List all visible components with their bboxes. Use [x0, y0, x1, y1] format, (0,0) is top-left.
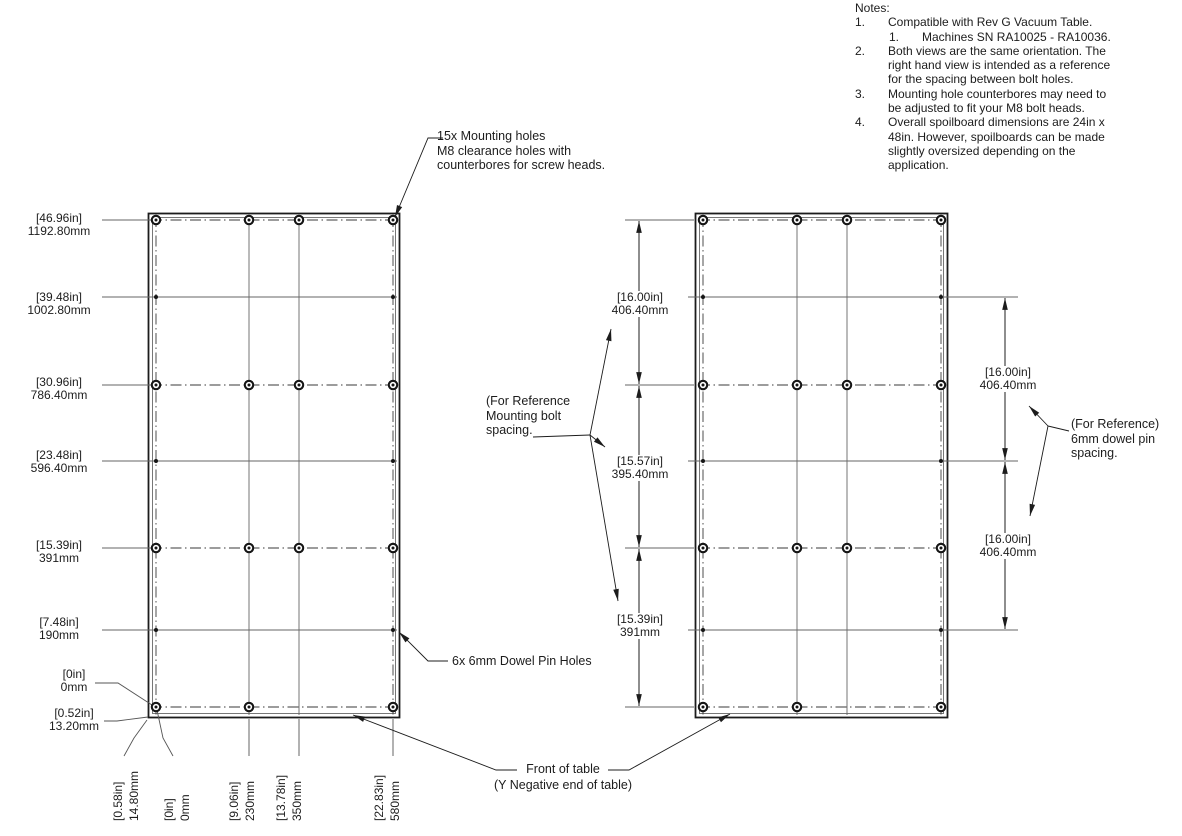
note-line: be adjusted to fit your M8 bolt heads. — [888, 101, 1106, 115]
note-text: Overall spoilboard dimensions are 24in x… — [888, 115, 1105, 172]
dim-mm: 190mm — [12, 629, 106, 642]
callout-line: Front of table — [467, 762, 659, 778]
callout-line: (Y Negative end of table) — [467, 778, 659, 794]
note-line: slightly oversized depending on the — [888, 144, 1105, 158]
dim-label-bottom-2: [9.06in] 230mm — [226, 757, 260, 821]
dim-inches: [0in] — [161, 757, 177, 821]
dim-mm: 1002.80mm — [12, 304, 106, 317]
note-text: Machines SN RA10025 - RA10036. — [922, 30, 1111, 44]
dim-label-left-1: [39.48in] 1002.80mm — [12, 291, 106, 317]
note-text: Compatible with Rev G Vacuum Table. — [888, 15, 1092, 29]
note-item-1-sub: 1. Machines SN RA10025 - RA10036. — [889, 30, 1182, 44]
dim-label-bottom-4: [22.83in] 580mm — [371, 757, 405, 821]
dim-label-dowel-1: [16.00in] 406.40mm — [968, 533, 1048, 559]
note-line: Mounting hole counterbores may need to — [888, 87, 1106, 101]
dim-mm: 13.20mm — [35, 720, 113, 733]
note-number: 2. — [855, 44, 888, 87]
note-text: Mounting hole counterbores may need to b… — [888, 87, 1106, 116]
dim-mm: 406.40mm — [969, 379, 1047, 392]
dim-mm: 14.80mm — [126, 757, 142, 821]
callout-mounting-holes: 15x Mounting holes M8 clearance holes wi… — [437, 129, 605, 173]
dim-mm: 596.40mm — [12, 462, 106, 475]
dim-mm: 391mm — [602, 626, 678, 639]
dim-label-left-6: [0in] 0mm — [30, 668, 118, 694]
dim-label-left-3: [23.48in] 596.40mm — [12, 449, 106, 475]
right-board-mounting-holes — [699, 216, 945, 711]
note-number: 4. — [855, 115, 888, 172]
dim-label-left-7: [0.52in] 13.20mm — [35, 707, 113, 733]
note-item-4: 4. Overall spoilboard dimensions are 24i… — [855, 115, 1182, 172]
dim-mm: 580mm — [387, 757, 403, 821]
dim-label-bolt-0: [16.00in] 406.40mm — [601, 291, 679, 317]
dim-inches: [22.83in] — [371, 757, 387, 821]
notes-title: Notes: — [855, 1, 1182, 15]
callout-line: Mounting bolt — [486, 409, 570, 424]
callout-line: 15x Mounting holes — [437, 129, 605, 144]
callout-line: counterbores for screw heads. — [437, 158, 605, 173]
note-item-3: 3. Mounting hole counterbores may need t… — [855, 87, 1182, 116]
note-line: 48in. However, spoilboards can be made — [888, 130, 1105, 144]
dim-inches: [13.78in] — [273, 757, 289, 821]
callout-leaders — [353, 138, 1069, 770]
dim-inches: [0.58in] — [110, 757, 126, 821]
dim-label-bolt-2: [15.39in] 391mm — [601, 613, 679, 639]
dim-mm: 350mm — [289, 757, 305, 821]
callout-line: 6x 6mm Dowel Pin Holes — [452, 654, 592, 669]
right-board-centerlines — [699, 216, 944, 715]
bottom-dim-leaders — [95, 683, 393, 756]
note-line: right hand view is intended as a referen… — [888, 58, 1110, 72]
notes-block: Notes: 1. Compatible with Rev G Vacuum T… — [855, 1, 1182, 173]
dim-mm: 230mm — [242, 757, 258, 821]
dim-mm: 391mm — [12, 552, 106, 565]
left-board-gridlines — [102, 216, 397, 715]
callout-ref-bolt-spacing: (For Reference Mounting bolt spacing. — [486, 394, 570, 438]
note-number: 1. — [889, 30, 922, 44]
dim-mm: 406.40mm — [602, 304, 678, 317]
right-board-gridlines — [625, 216, 1018, 715]
note-line: application. — [888, 158, 1105, 172]
dim-mm: 395.40mm — [602, 468, 678, 481]
dim-label-bottom-1: [0in] 0mm — [161, 757, 195, 821]
callout-ref-dowel-spacing: (For Reference) 6mm dowel pin spacing. — [1071, 417, 1159, 461]
note-line: for the spacing between bolt holes. — [888, 72, 1110, 86]
note-number: 1. — [855, 15, 888, 29]
note-line: Machines SN RA10025 - RA10036. — [922, 30, 1111, 44]
dim-mm: 786.40mm — [12, 389, 106, 402]
note-item-1: 1. Compatible with Rev G Vacuum Table. — [855, 15, 1182, 29]
dim-inches: [9.06in] — [226, 757, 242, 821]
dim-mm: 1192.80mm — [12, 225, 106, 238]
left-board-dowel-holes — [154, 295, 395, 632]
left-board-mounting-holes — [152, 216, 397, 711]
dim-label-left-2: [30.96in] 786.40mm — [12, 376, 106, 402]
dim-label-dowel-0: [16.00in] 406.40mm — [968, 366, 1048, 392]
callout-front-of-table: Front of table (Y Negative end of table) — [467, 762, 659, 793]
dim-label-left-4: [15.39in] 391mm — [12, 539, 106, 565]
callout-line: spacing. — [486, 423, 570, 438]
dim-mm: 0mm — [177, 757, 193, 821]
note-item-2: 2. Both views are the same orientation. … — [855, 44, 1182, 87]
note-line: Compatible with Rev G Vacuum Table. — [888, 15, 1092, 29]
engineering-drawing-page: [46.96in] 1192.80mm [39.48in] 1002.80mm … — [0, 0, 1182, 836]
dim-mm: 406.40mm — [969, 546, 1047, 559]
right-board-dowel-holes — [701, 295, 943, 632]
note-line: Both views are the same orientation. The — [888, 44, 1110, 58]
callout-line: (For Reference) — [1071, 417, 1159, 432]
dim-mm: 0mm — [30, 681, 118, 694]
dim-label-bottom-0: [0.58in] 14.80mm — [110, 757, 144, 821]
dim-label-bolt-1: [15.57in] 395.40mm — [601, 455, 679, 481]
right-board-outline — [696, 214, 948, 718]
note-number: 3. — [855, 87, 888, 116]
callout-line: spacing. — [1071, 446, 1159, 461]
dim-label-left-5: [7.48in] 190mm — [12, 616, 106, 642]
note-text: Both views are the same orientation. The… — [888, 44, 1110, 87]
left-board-outline — [149, 214, 400, 718]
note-line: Overall spoilboard dimensions are 24in x — [888, 115, 1105, 129]
callout-line: 6mm dowel pin — [1071, 432, 1159, 447]
dim-label-left-0: [46.96in] 1192.80mm — [12, 212, 106, 238]
callout-dowel-pin-holes: 6x 6mm Dowel Pin Holes — [452, 654, 592, 669]
left-board-centerlines — [151, 216, 397, 715]
callout-line: M8 clearance holes with — [437, 144, 605, 159]
dim-label-bottom-3: [13.78in] 350mm — [273, 757, 307, 821]
callout-line: (For Reference — [486, 394, 570, 409]
